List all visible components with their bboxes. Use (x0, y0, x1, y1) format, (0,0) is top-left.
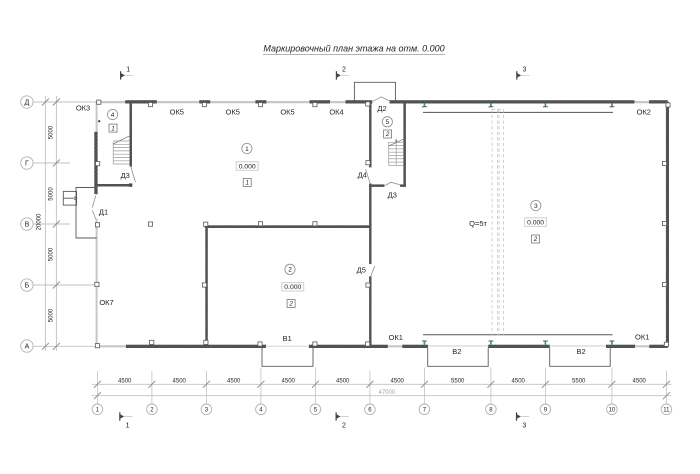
svg-text:3: 3 (534, 203, 538, 210)
svg-text:2: 2 (288, 267, 292, 274)
svg-text:4500: 4500 (173, 378, 187, 384)
svg-text:4500: 4500 (118, 378, 132, 384)
svg-text:2: 2 (533, 236, 538, 243)
svg-text:10: 10 (609, 408, 616, 414)
svg-text:4500: 4500 (512, 378, 526, 384)
svg-text:Д: Д (25, 100, 30, 107)
svg-text:ОК7: ОК7 (99, 298, 113, 307)
svg-text:В2: В2 (452, 347, 461, 356)
svg-text:ОК5: ОК5 (170, 108, 184, 117)
svg-text:3: 3 (522, 66, 526, 73)
svg-text:2: 2 (342, 423, 346, 430)
svg-text:1: 1 (111, 125, 115, 132)
svg-text:5000: 5000 (49, 125, 55, 139)
svg-text:1: 1 (126, 423, 130, 430)
svg-text:5500: 5500 (451, 378, 465, 384)
svg-text:20000: 20000 (37, 213, 43, 230)
svg-text:4500: 4500 (336, 378, 350, 384)
svg-text:4500: 4500 (227, 378, 241, 384)
svg-text:5: 5 (385, 119, 389, 126)
svg-text:ОК3: ОК3 (76, 103, 90, 112)
svg-text:2: 2 (342, 66, 346, 73)
svg-text:В2: В2 (577, 347, 586, 356)
svg-text:А: А (25, 344, 30, 351)
svg-text:Д4: Д4 (358, 170, 367, 179)
svg-text:0.000: 0.000 (239, 163, 256, 170)
svg-text:Д3: Д3 (388, 190, 397, 199)
svg-text:1: 1 (245, 146, 249, 153)
svg-text:4500: 4500 (633, 378, 647, 384)
svg-text:Маркировочный план этажа на от: Маркировочный план этажа на отм. 0.000 (263, 44, 444, 54)
svg-text:2: 2 (385, 131, 390, 138)
svg-text:0.000: 0.000 (284, 284, 301, 291)
svg-text:5000: 5000 (49, 247, 55, 261)
svg-text:ОК2: ОК2 (637, 108, 651, 117)
svg-text:ОК5: ОК5 (280, 108, 294, 117)
svg-text:5000: 5000 (49, 308, 55, 322)
svg-text:0.000: 0.000 (527, 219, 544, 226)
svg-text:Д2: Д2 (377, 104, 386, 113)
svg-text:ОК4: ОК4 (329, 108, 343, 117)
svg-text:В: В (25, 222, 30, 229)
svg-text:1: 1 (126, 66, 130, 73)
svg-text:4500: 4500 (282, 378, 296, 384)
svg-text:ОК1: ОК1 (635, 333, 649, 342)
svg-text:1: 1 (245, 180, 249, 187)
svg-text:4500: 4500 (391, 378, 405, 384)
svg-text:ОК1: ОК1 (389, 333, 403, 342)
svg-text:Q=5т: Q=5т (469, 219, 487, 228)
svg-text:3: 3 (522, 423, 526, 430)
svg-text:5500: 5500 (572, 378, 586, 384)
svg-text:47000: 47000 (379, 390, 396, 396)
svg-text:ОК5: ОК5 (226, 108, 240, 117)
svg-text:11: 11 (663, 408, 670, 414)
svg-text:Д1: Д1 (99, 208, 108, 217)
svg-text:Б: Б (25, 283, 30, 290)
svg-text:Д3: Д3 (121, 171, 130, 180)
svg-text:4: 4 (111, 112, 115, 119)
svg-text:Д5: Д5 (357, 265, 366, 274)
svg-text:5000: 5000 (49, 187, 55, 201)
svg-text:2: 2 (288, 301, 293, 308)
svg-text:Г: Г (25, 161, 29, 168)
svg-text:В1: В1 (283, 334, 292, 343)
